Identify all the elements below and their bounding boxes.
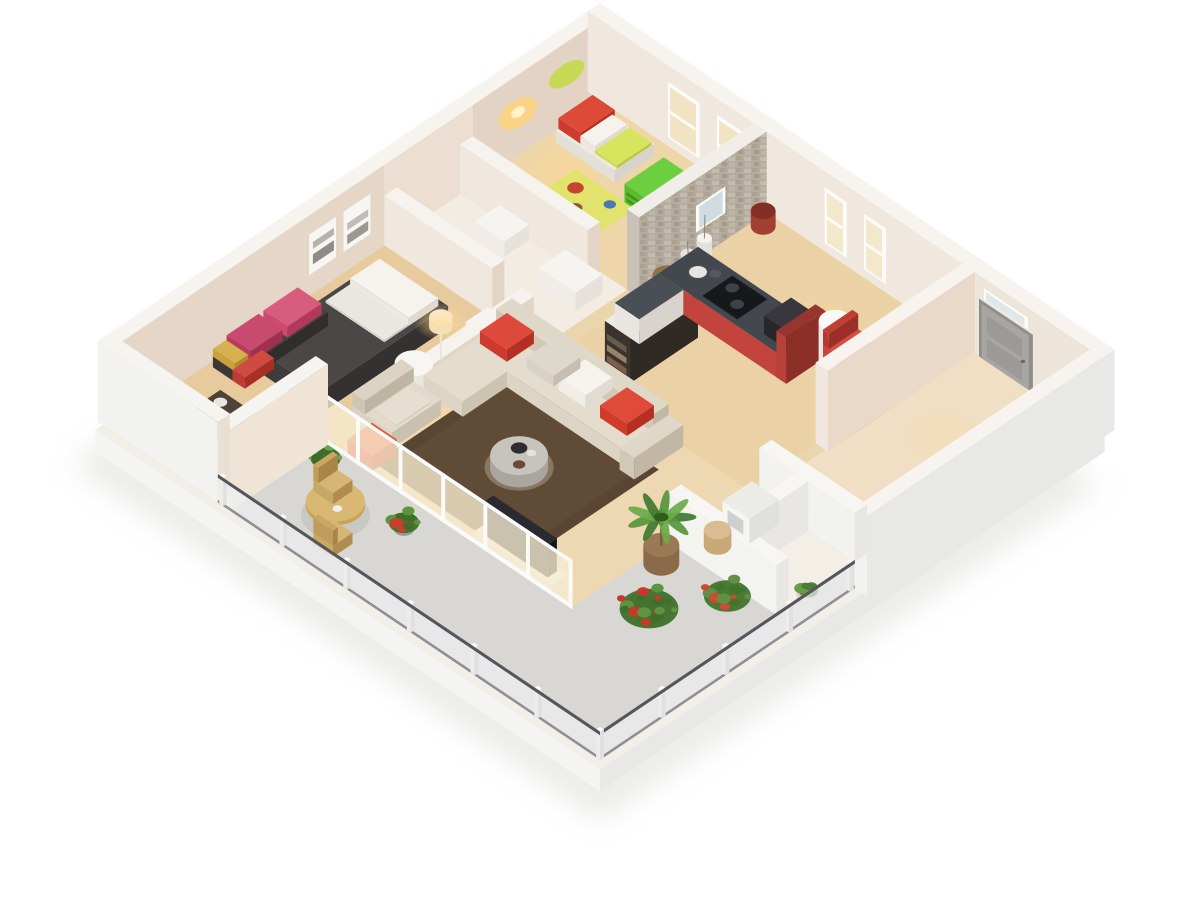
glass-wall-mullion <box>399 443 403 495</box>
door-handle <box>1020 360 1025 363</box>
floor-lamp-glow <box>413 303 468 340</box>
bistro-cup <box>333 505 343 512</box>
kids-toy <box>604 200 616 208</box>
kitchen-pot <box>709 269 721 277</box>
glass-wall-mullion <box>441 472 445 524</box>
kids-toy <box>567 182 584 193</box>
floor-plan-svg <box>0 0 1200 900</box>
cooktop-burner <box>730 300 744 309</box>
cooktop-burner <box>725 283 739 292</box>
kitchen-dish <box>689 266 707 278</box>
coffee-table-item <box>527 450 537 457</box>
coffee-table-item <box>511 442 528 453</box>
red-waste-bin <box>751 203 776 235</box>
glass-wall-mullion <box>569 557 573 609</box>
laundry-basket <box>704 521 732 555</box>
glass-wall-mullion <box>526 529 530 581</box>
floor-plan-3d-render <box>0 0 1200 900</box>
glass-wall-mullion <box>483 500 487 552</box>
coffee-table-item <box>513 460 525 468</box>
vase-twigs <box>704 215 705 238</box>
glass-wall-mullion <box>356 414 360 466</box>
